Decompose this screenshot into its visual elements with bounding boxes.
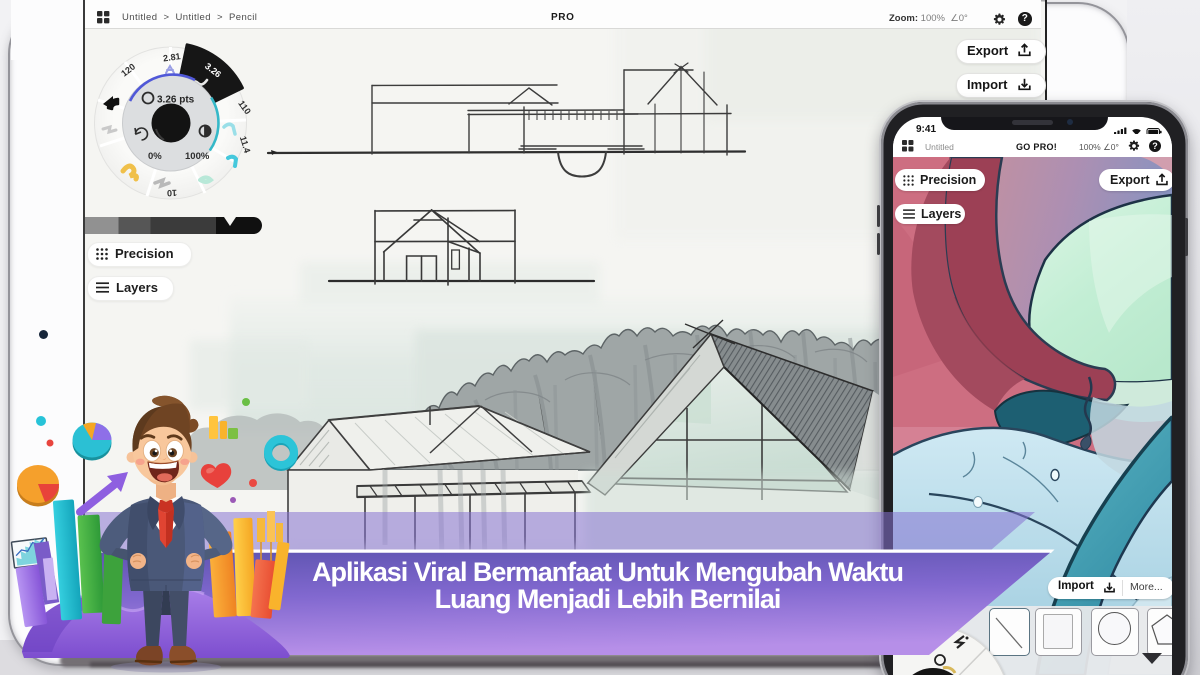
svg-text:100%: 100% <box>185 151 210 162</box>
svg-text:0%: 0% <box>148 151 162 162</box>
svg-text:10: 10 <box>167 188 177 198</box>
svg-text:3.26 pts: 3.26 pts <box>157 95 195 106</box>
